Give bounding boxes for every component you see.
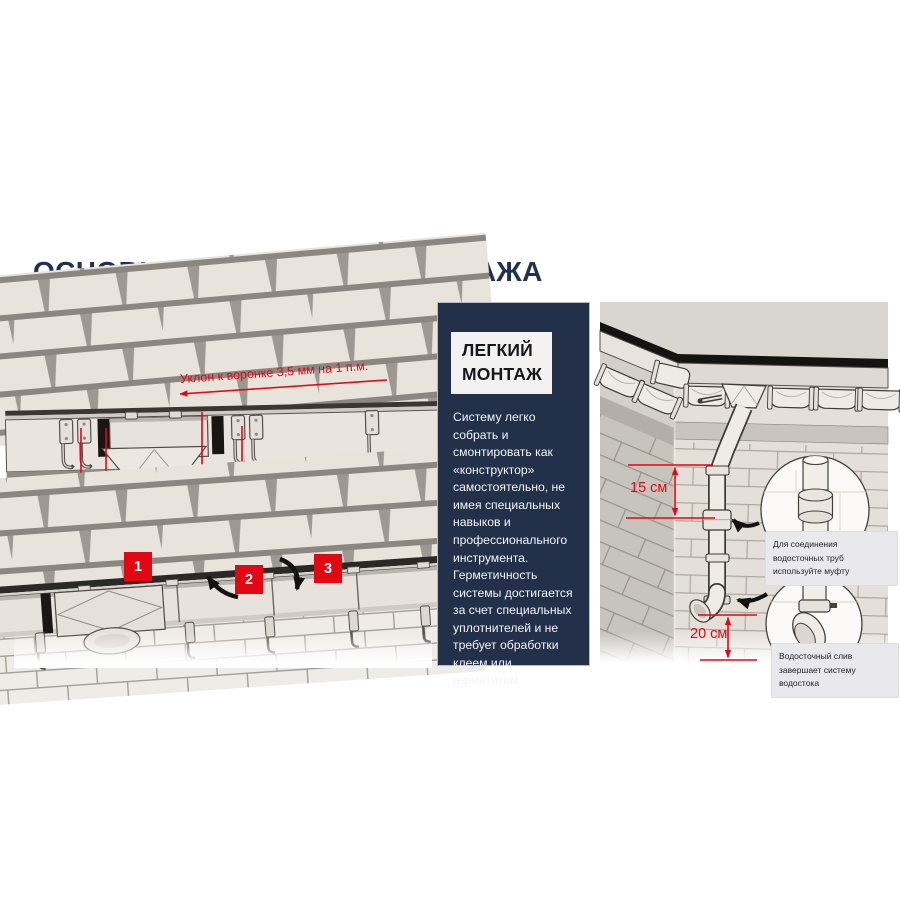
- downpipe-panel: 15 см 20 см Для соединения водосточных т…: [600, 302, 888, 668]
- easy-install-panel: ЛЕГКИЙ МОНТАЖ Систему легко собрать и см…: [437, 302, 590, 666]
- step-badge-1: 1: [124, 552, 152, 581]
- coupling-callout: Для соединения водосточных труб использу…: [765, 531, 898, 586]
- dimension-label-20cm: 20 см: [690, 627, 727, 642]
- gutter-assembly-panel: 1 2 3: [14, 521, 432, 668]
- heading-line-1: ЛЕГКИЙ: [462, 339, 552, 363]
- heading-line-2: МОНТАЖ: [462, 363, 552, 387]
- gutter-assembly-illustration: [14, 521, 432, 668]
- dimension-label-15cm: 15 см: [630, 481, 667, 496]
- step-badge-3: 3: [314, 554, 342, 583]
- easy-install-body-text: Систему легко собрать и смонтировать как…: [453, 409, 580, 690]
- outlet-callout: Водосточный слив завершает систему водос…: [771, 643, 899, 698]
- easy-install-heading-box: ЛЕГКИЙ МОНТАЖ: [451, 332, 552, 394]
- step-badge-2: 2: [235, 565, 263, 594]
